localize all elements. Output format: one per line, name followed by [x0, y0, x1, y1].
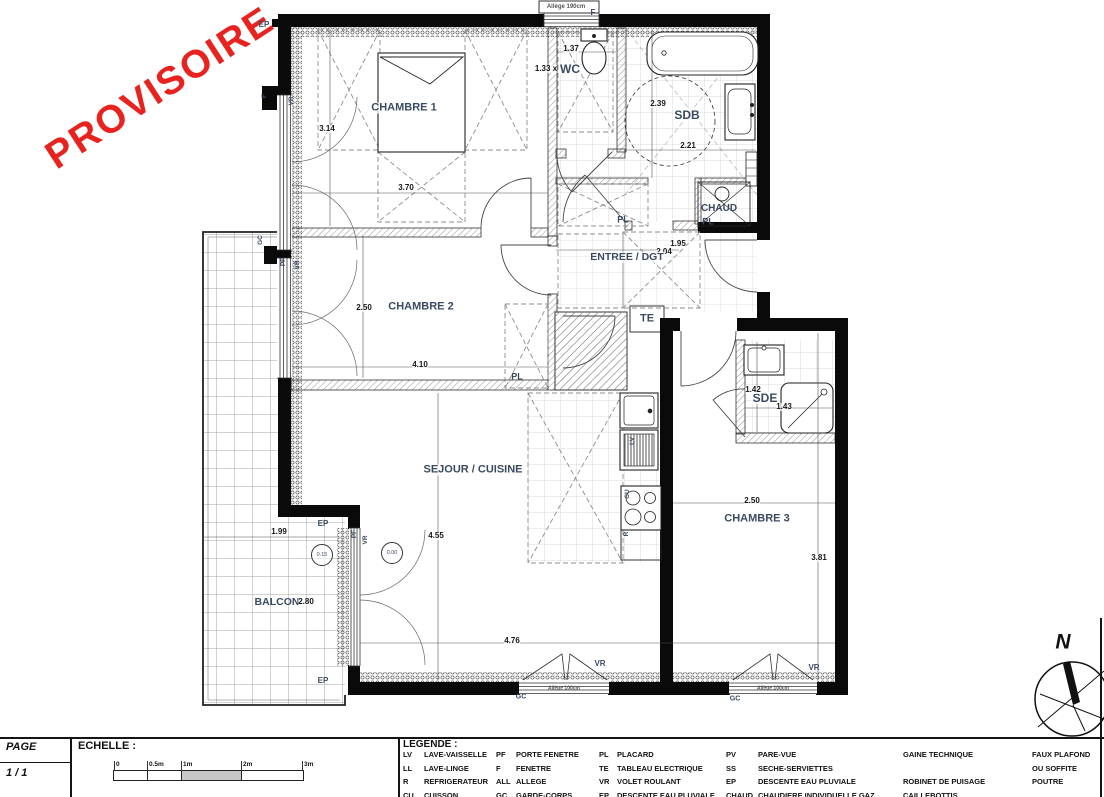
towel-radiator	[746, 152, 757, 186]
lv-label-dishwasher: LV	[630, 437, 637, 445]
closet-label-pl-3: PL	[511, 373, 523, 382]
legend-item: LLLAVE-LINGE	[403, 764, 488, 778]
room-label-chaud: CHAUD	[700, 204, 738, 214]
scale-tick-0: 0	[114, 761, 120, 771]
legend-item: PFPORTE FENETRE	[496, 750, 579, 764]
legend-item: ROBINET DE PUISAGE	[903, 777, 985, 791]
legend-column-4: PVPARE-VUE SSSECHE-SERVIETTES EPDESCENTE…	[726, 750, 875, 797]
dim-entree-w: 1.95	[670, 240, 686, 248]
legend-item	[903, 764, 985, 778]
dim-sdb-h: 2.39	[650, 100, 666, 108]
legend-item: SSSECHE-SERVIETTES	[726, 764, 875, 778]
dim-chambre1-w: 3.70	[398, 184, 414, 192]
f-label-top-window: F	[591, 9, 596, 17]
dim-sde-h: 1.42	[745, 386, 761, 394]
pf-label-chambre2-window: PF	[281, 258, 288, 266]
titleblock-top-border	[0, 737, 1104, 739]
dim-chambre3-h: 3.81	[811, 554, 827, 562]
dim-chambre2-w: 4.10	[412, 361, 428, 369]
window-chambre1	[277, 95, 357, 250]
north-label: N	[1055, 632, 1070, 653]
room-label-wc: WC	[559, 63, 581, 75]
dim-wc-h: 1.33 x	[535, 65, 557, 73]
ep-label-top: EP	[259, 21, 270, 29]
ep-label-balcony-top: EP	[318, 520, 329, 528]
ep-label-balcony-bottom: EP	[318, 677, 329, 685]
legend-item: FFENETRE	[496, 764, 579, 778]
bathroom-sink	[725, 84, 755, 140]
legend-item: ALLALLEGE	[496, 777, 579, 791]
legend-box-left-border	[398, 737, 400, 797]
scale-tick-3m: 3m	[302, 761, 313, 771]
legend-column-1: LVLAVE-VAISSELLE LLLAVE-LINGE RREFRIGERA…	[403, 750, 488, 797]
vr-label-chambre3-window: VR	[808, 664, 819, 672]
dim-chambre3-w: 2.50	[744, 497, 760, 505]
toilet	[581, 29, 607, 74]
allege-label-top-window: Allège 190cm	[547, 4, 585, 10]
dim-chambre1-h: 3.14	[319, 125, 335, 133]
legend-item: EPDESCENTE EAU PLUVIALE	[599, 791, 715, 797]
scale-tick-1m: 1m	[181, 761, 192, 771]
scale-seg-1	[114, 771, 147, 780]
gc-label-sejour-window: GC	[516, 694, 527, 701]
room-label-chambre1: CHAMBRE 1	[370, 103, 437, 114]
page-label: PAGE	[6, 741, 36, 753]
page-box-right-border	[70, 737, 72, 797]
room-label-chambre3: CHAMBRE 3	[723, 514, 790, 525]
legend-item: RREFRIGERATEUR	[403, 777, 488, 791]
kitchen-sink	[620, 393, 658, 428]
scale-label: ECHELLE :	[78, 740, 136, 752]
gc-label-chambre1-window: GC	[258, 235, 265, 245]
legend-column-5: GAINE TECHNIQUE ROBINET DE PUISAGE CAILL…	[903, 750, 985, 797]
dim-balcon-w: 1.99	[271, 528, 287, 536]
dim-sde-w: 1.43	[776, 403, 792, 411]
room-label-sejour-cuisine: SEJOUR / CUISINE	[422, 465, 523, 476]
page-box-divider	[0, 762, 70, 763]
legend-item: GAINE TECHNIQUE	[903, 750, 985, 764]
scale-seg-2	[147, 771, 181, 780]
legend-item: POUTRE	[1032, 777, 1090, 791]
f-label-chambre1-window: F	[262, 94, 269, 98]
legend-column-6: FAUX PLAFOND OU SOFFITE POUTRE	[1032, 750, 1090, 797]
sheet-right-border	[1100, 618, 1102, 797]
legend-item: EPDESCENTE EAU PLUVIALE	[726, 777, 875, 791]
sde-sink	[744, 345, 784, 375]
closet-label-pl-2: PL	[702, 218, 714, 227]
scale-tick-2m: 2m	[241, 761, 252, 771]
closet-label-pl-1: PL	[617, 216, 629, 225]
room-label-sdb: SDB	[673, 109, 700, 121]
legend-item: CAILLEBOTTIS	[903, 791, 985, 797]
allege-label-chambre3-window: Allège 100cm	[757, 687, 789, 692]
gc-label-chambre3-window: GC	[730, 696, 741, 703]
scale-seg-3	[181, 771, 241, 780]
legend-item: VRVOLET ROULANT	[599, 777, 715, 791]
dim-sejour-h: 4.55	[428, 532, 444, 540]
r-label-fridge: R	[624, 532, 631, 537]
north-compass	[1035, 661, 1104, 736]
legend-item: FAUX PLAFOND	[1032, 750, 1090, 764]
dim-sdb-w: 2.21	[680, 142, 696, 150]
floor-plan-sheet: PROVISOIRE CHAMBRE 1 CHAMBRE 2 CHAMBRE 3…	[0, 0, 1104, 797]
legend-column-3: PLPLACARD TETABLEAU ELECTRIQUE VRVOLET R…	[599, 750, 715, 797]
legend-item: CHAUDCHAUDIERE INDIVIDUELLE GAZ	[726, 791, 875, 797]
balcony	[203, 232, 345, 705]
room-label-entree: ENTREE / DGT	[589, 252, 665, 263]
dim-wc-w: 1.37	[563, 45, 579, 53]
vr-label-sejour-window: VR	[594, 660, 605, 668]
cu-label-cooktop: CU	[625, 489, 632, 498]
window-chambre2	[277, 258, 357, 378]
legend-item: GCGARDE-CORPS	[496, 791, 579, 797]
dishwasher	[620, 430, 658, 470]
legend-title: LEGENDE :	[403, 739, 457, 750]
vr-label-chambre1: VR	[289, 96, 296, 105]
legend-item: LVLAVE-VAISSELLE	[403, 750, 488, 764]
vr-label-sejour-door: VR	[363, 535, 370, 544]
scale-tick-05m: 0.5m	[147, 761, 164, 771]
legend-item	[1032, 791, 1090, 797]
legend-item: PLPLACARD	[599, 750, 715, 764]
pf-label-sejour-door: PF	[352, 530, 359, 538]
dim-balcon-h: 2.80	[298, 598, 314, 606]
allege-label-sejour-window: Allège 100cm	[548, 687, 580, 692]
scale-bar: 0 0.5m 1m 2m 3m	[113, 770, 304, 781]
legend-column-2: PFPORTE FENETRE FFENETRE ALLALLEGE GCGAR…	[496, 750, 579, 797]
page-number: 1 / 1	[6, 767, 27, 779]
vr-label-chambre2: VR	[295, 260, 302, 269]
dim-chambre2-h: 2.50	[356, 304, 372, 312]
room-label-te: TE	[639, 314, 655, 325]
legend-item: CUCUISSON	[403, 791, 488, 797]
dim-sejour-w: 4.76	[504, 637, 520, 645]
level-marker-sejour: 0.00	[381, 542, 403, 564]
legend-item: OU SOFFITE	[1032, 764, 1090, 778]
legend-item: PVPARE-VUE	[726, 750, 875, 764]
level-marker-balcon: 0.15	[311, 544, 333, 566]
room-label-chambre2: CHAMBRE 2	[387, 302, 454, 313]
legend-item: TETABLEAU ELECTRIQUE	[599, 764, 715, 778]
scale-seg-4	[241, 771, 303, 780]
bathtub	[647, 32, 758, 75]
room-label-balcon: BALCON	[254, 597, 301, 608]
